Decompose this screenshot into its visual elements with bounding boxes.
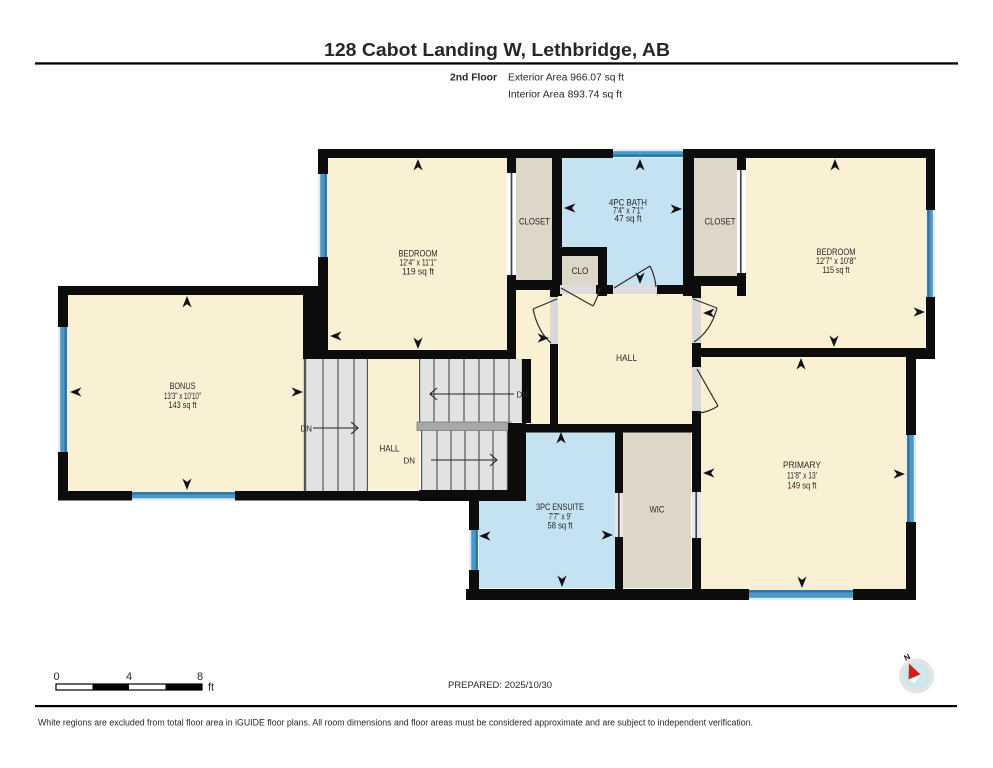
svg-text:0: 0	[53, 671, 59, 683]
svg-text:119 sq ft: 119 sq ft	[402, 267, 434, 277]
svg-text:115 sq ft: 115 sq ft	[823, 265, 850, 275]
svg-text:HALL: HALL	[380, 444, 400, 455]
svg-text:143 sq ft: 143 sq ft	[169, 400, 197, 410]
svg-text:4: 4	[126, 671, 132, 683]
svg-text:CLOSET: CLOSET	[519, 217, 550, 228]
svg-text:47 sq ft: 47 sq ft	[615, 214, 642, 224]
svg-text:DN: DN	[404, 457, 416, 466]
svg-text:Exterior Area 966.07 sq ft: Exterior Area 966.07 sq ft	[508, 73, 624, 84]
svg-text:PREPARED: 2025/10/30: PREPARED: 2025/10/30	[448, 680, 552, 691]
svg-text:HALL: HALL	[616, 353, 637, 364]
svg-text:Interior Area 893.74 sq ft: Interior Area 893.74 sq ft	[508, 90, 622, 101]
svg-text:PRIMARY: PRIMARY	[783, 460, 822, 471]
svg-text:11'8" x 13': 11'8" x 13'	[787, 471, 817, 481]
svg-text:8: 8	[197, 671, 203, 683]
svg-text:149 sq ft: 149 sq ft	[788, 481, 817, 491]
svg-text:White regions are excluded fro: White regions are excluded from total fl…	[38, 718, 753, 728]
svg-text:DN: DN	[301, 425, 313, 434]
svg-text:DN: DN	[517, 391, 529, 400]
svg-text:58 sq ft: 58 sq ft	[548, 521, 573, 531]
svg-text:ft: ft	[208, 682, 214, 694]
svg-text:CLO: CLO	[572, 266, 589, 277]
svg-text:2nd Floor: 2nd Floor	[450, 73, 497, 84]
svg-text:CLOSET: CLOSET	[705, 217, 736, 228]
svg-text:WIC: WIC	[650, 505, 665, 516]
svg-text:128 Cabot Landing W, Lethbridg: 128 Cabot Landing W, Lethbridge, AB	[324, 40, 670, 60]
